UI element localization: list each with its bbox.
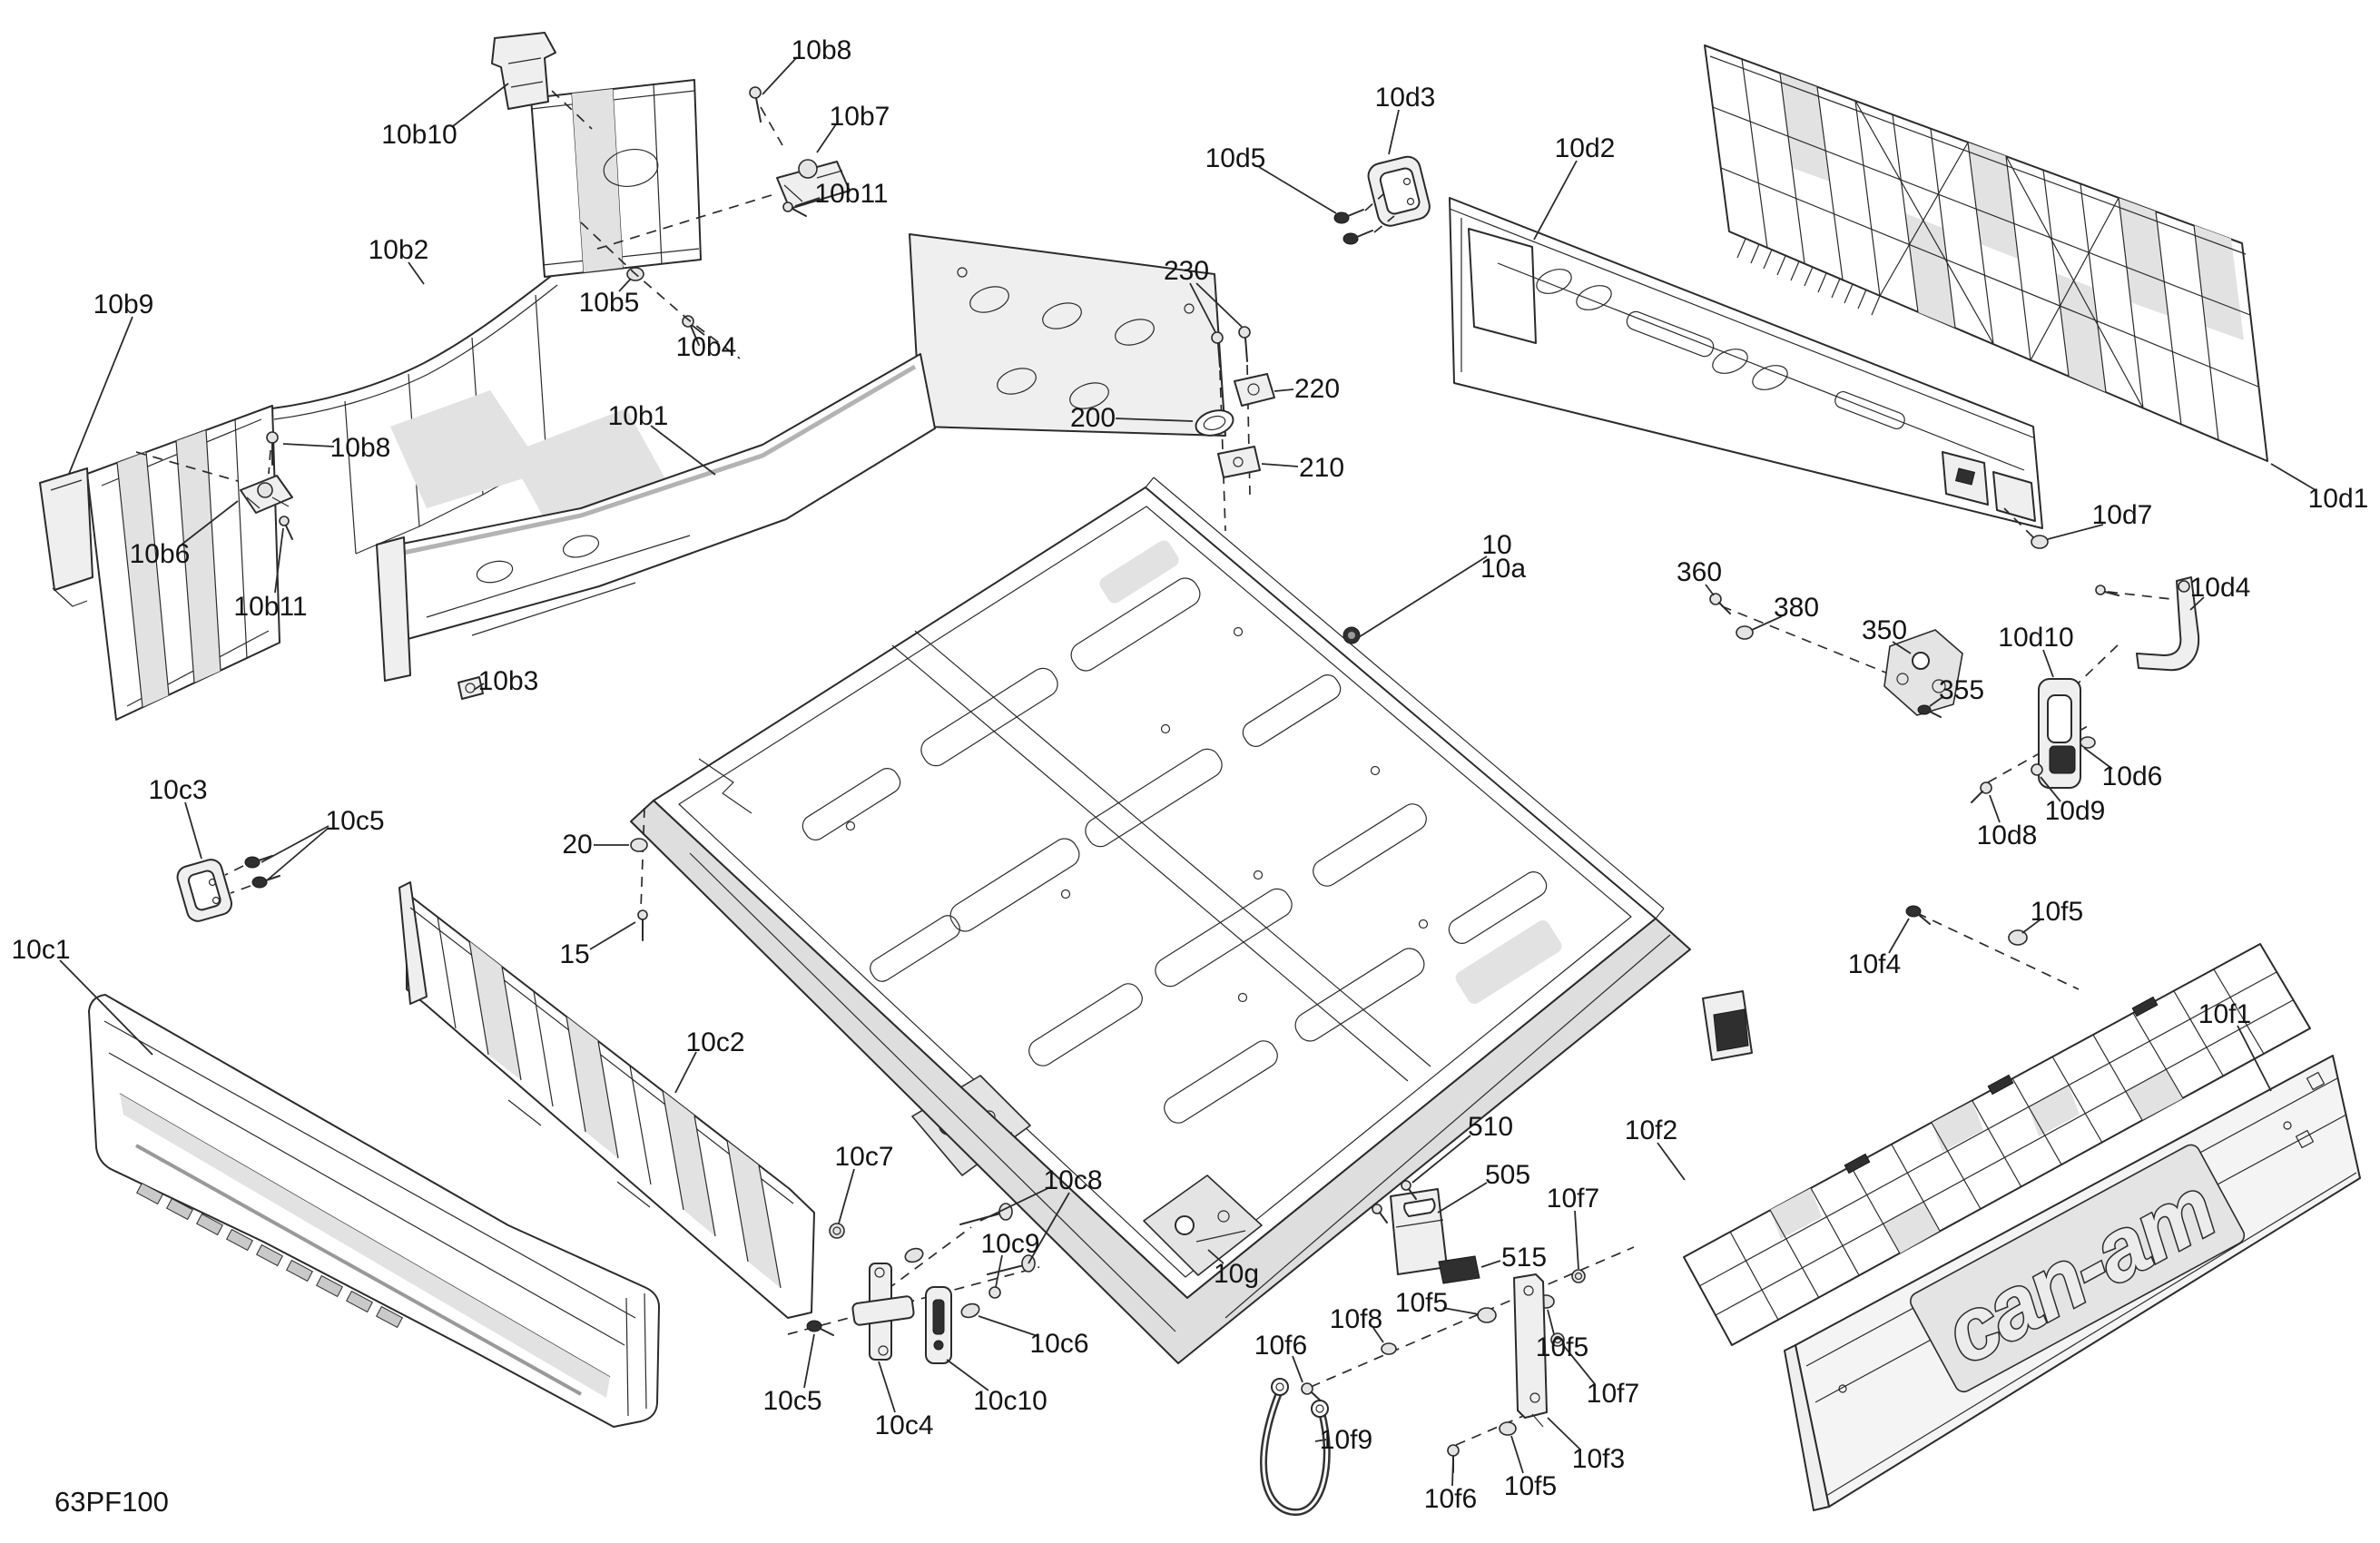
- hardware-10c5-screws: [225, 856, 280, 893]
- callout-10f9: 10f9: [1315, 1425, 1372, 1455]
- callout-text-20: 20: [562, 830, 592, 860]
- callout-text-10b8-low: 10b8: [330, 433, 391, 463]
- callout-leader: [2043, 650, 2053, 677]
- callout-leader: [590, 922, 635, 949]
- callout-10f4: 10f4: [1848, 919, 1909, 979]
- callout-220: 220: [1274, 374, 1340, 404]
- callout-leader: [1274, 389, 1293, 391]
- callout-10a: 10a: [1480, 554, 1526, 584]
- callout-text-10d4: 10d4: [2190, 573, 2251, 603]
- callout-text-10c2: 10c2: [685, 1027, 744, 1057]
- part-flap-installed: [1703, 991, 1752, 1060]
- callout-text-10d10: 10d10: [1998, 623, 2073, 653]
- callout-10d10: 10d10: [1998, 623, 2073, 677]
- callout-text-10d2: 10d2: [1555, 133, 1616, 163]
- washer-20: [631, 839, 647, 851]
- callout-10f7-a: 10f7: [1547, 1184, 1599, 1269]
- callout-text-10f1: 10f1: [2198, 999, 2251, 1029]
- callout-10b4: 10b4: [676, 325, 737, 362]
- callout-text-15: 15: [559, 939, 589, 969]
- callout-text-10f4: 10f4: [1848, 949, 1901, 979]
- callout-210: 210: [1262, 453, 1344, 483]
- part-10b10-bracket: [492, 33, 556, 109]
- screw-10d5-b: [1343, 231, 1372, 244]
- callout-leader: [675, 1052, 696, 1093]
- callout-text-10c4: 10c4: [874, 1410, 933, 1440]
- callout-text-10c8: 10c8: [1043, 1165, 1102, 1195]
- callout-leader: [185, 802, 202, 859]
- screw-10f4: [1906, 906, 1930, 924]
- callout-10f8: 10f8: [1330, 1304, 1383, 1342]
- callout-text-200: 200: [1070, 403, 1116, 433]
- screw-10b8-top: [750, 87, 761, 122]
- callout-leader: [1443, 1308, 1479, 1314]
- callout-text-10b4: 10b4: [676, 332, 737, 362]
- callout-10b7: 10b7: [817, 102, 890, 152]
- screw-360: [1710, 594, 1730, 614]
- callout-text-10d8: 10d8: [1977, 821, 2038, 850]
- callout-leader: [1262, 464, 1298, 467]
- callout-leader: [1481, 1261, 1500, 1267]
- callout-10b5: 10b5: [579, 279, 640, 318]
- washer-10f8: [1382, 1343, 1396, 1354]
- callout-text-10a: 10a: [1480, 554, 1526, 584]
- callout-10d1: 10d1: [2271, 464, 2368, 514]
- callout-text-10b8-top: 10b8: [792, 35, 852, 65]
- callout-leader: [1452, 1457, 1453, 1486]
- hardware-10d4-cluster: [1972, 508, 2198, 802]
- nut-10f7-a: [1572, 1270, 1585, 1283]
- callout-10b2: 10b2: [369, 235, 429, 284]
- callout-leader: [283, 444, 334, 447]
- callout-515: 515: [1481, 1243, 1547, 1273]
- callout-text-10f7-b: 10f7: [1587, 1379, 1639, 1409]
- callout-leader: [1511, 1436, 1523, 1473]
- part-515-pad: [1439, 1256, 1480, 1283]
- callout-text-10b9: 10b9: [93, 290, 154, 319]
- callout-10f3: 10f3: [1548, 1418, 1625, 1474]
- callout-leader: [1259, 167, 1336, 213]
- callout-text-10f5-c: 10f5: [1504, 1471, 1557, 1501]
- callout-leader: [453, 84, 508, 126]
- callout-text-10f5-d: 10f5: [2031, 897, 2083, 927]
- callout-text-10f5-b: 10f5: [1536, 1332, 1588, 1362]
- callout-text-360: 360: [1677, 557, 1722, 587]
- callout-text-230: 230: [1164, 256, 1209, 286]
- callout-10c7: 10c7: [834, 1142, 893, 1224]
- callout-leader: [1389, 110, 1399, 154]
- part-10b9-end-cap: [40, 468, 93, 606]
- callout-text-10c5-low: 10c5: [762, 1386, 821, 1416]
- callout-10b10: 10b10: [381, 84, 508, 150]
- plate-10c4: [852, 1263, 915, 1360]
- callout-leader: [1359, 556, 1487, 637]
- washer-10c6-a: [903, 1246, 925, 1264]
- callout-text-10d1: 10d1: [2308, 484, 2369, 514]
- callout-10c5-top: 10c5: [261, 806, 385, 880]
- screw-10d8: [1972, 782, 1992, 802]
- nut-10c9: [989, 1287, 1000, 1298]
- callout-text-515: 515: [1501, 1243, 1547, 1273]
- callout-leader: [408, 262, 424, 284]
- callout-10f5-c: 10f5: [1504, 1436, 1557, 1501]
- screw-510-b: [1372, 1204, 1387, 1223]
- callout-text-10f2: 10f2: [1625, 1115, 1677, 1145]
- callout-text-210: 210: [1299, 453, 1344, 483]
- callout-10d3: 10d3: [1375, 83, 1436, 154]
- bracket-220: [1234, 374, 1274, 406]
- callout-10b9: 10b9: [69, 290, 153, 474]
- callout-10c2: 10c2: [675, 1027, 745, 1093]
- callout-10c4: 10c4: [874, 1361, 933, 1440]
- callout-leader: [651, 426, 715, 475]
- callout-text-10b11-low: 10b11: [233, 592, 307, 622]
- screw-10d5-a: [1334, 210, 1363, 223]
- callout-10d8: 10d8: [1977, 795, 2038, 850]
- callout-text-10c10: 10c10: [973, 1386, 1047, 1416]
- floor-latch-fitting: [1343, 627, 1360, 644]
- callout-text-10c5-top: 10c5: [325, 806, 384, 836]
- callout-10c10: 10c10: [947, 1360, 1047, 1416]
- callout-leader: [879, 1361, 895, 1412]
- callout-text-10b3: 10b3: [478, 666, 539, 696]
- callout-10: 10: [1359, 530, 1512, 637]
- callout-10f6-b: 10f6: [1424, 1457, 1477, 1514]
- callout-350: 350: [1862, 615, 1911, 654]
- callout-text-10d6: 10d6: [2102, 762, 2163, 791]
- part-10d3-frame: [1366, 154, 1432, 229]
- callout-leader: [1548, 1310, 1554, 1334]
- callout-text-10c3: 10c3: [148, 775, 207, 805]
- bracket-210: [1218, 447, 1260, 477]
- callout-text-10f7-a: 10f7: [1547, 1184, 1599, 1214]
- handle-10d4: [2096, 577, 2198, 670]
- callout-text-10d9: 10d9: [2045, 796, 2106, 826]
- nut-10c7: [830, 1224, 844, 1238]
- callout-10f2: 10f2: [1625, 1115, 1685, 1180]
- callout-leader: [1575, 1211, 1578, 1269]
- callout-text-10f6-b: 10f6: [1424, 1484, 1477, 1514]
- part-10c3-frame: [175, 857, 234, 923]
- washer-380: [1736, 626, 1753, 639]
- callout-355: 355: [1930, 675, 1984, 706]
- striker-10d10: [2039, 679, 2080, 788]
- callout-text-10c1: 10c1: [11, 935, 70, 965]
- washer-10f5-a: [1478, 1308, 1496, 1322]
- callout-text-10f6-a: 10f6: [1254, 1331, 1307, 1361]
- screw-15: [638, 910, 647, 940]
- washer-10d6: [2080, 737, 2095, 748]
- parts-diagram-page: can-am: [0, 0, 2380, 1543]
- washer-10c6-b: [959, 1302, 981, 1320]
- callout-text-10f8: 10f8: [1330, 1304, 1382, 1334]
- callout-10d4: 10d4: [2190, 573, 2251, 610]
- callout-10d5: 10d5: [1205, 143, 1336, 213]
- callout-text-10b1: 10b1: [608, 401, 669, 431]
- callout-text-350: 350: [1862, 615, 1907, 645]
- callout-10f5-d: 10f5: [2022, 897, 2083, 933]
- callout-leader: [979, 1316, 1038, 1336]
- callout-text-505: 505: [1485, 1160, 1530, 1190]
- callout-10c5-low: 10c5: [762, 1334, 821, 1416]
- callout-text-10c7: 10c7: [834, 1142, 893, 1172]
- screw-10d4: [2096, 585, 2119, 595]
- callout-text-10g: 10g: [1214, 1259, 1259, 1289]
- nut-10d9: [2031, 764, 2042, 775]
- exploded-parts-diagram: can-am: [0, 0, 2380, 1543]
- callout-10f5-a: 10f5: [1395, 1288, 1479, 1318]
- callout-20: 20: [562, 830, 629, 860]
- callout-10c9: 10c9: [980, 1229, 1039, 1287]
- callout-10b8-low: 10b8: [283, 433, 390, 463]
- callout-text-10b7: 10b7: [830, 102, 890, 132]
- callout-text-10b2: 10b2: [369, 235, 429, 265]
- callout-text-510: 510: [1468, 1112, 1513, 1142]
- callout-text-10b11-top: 10b11: [814, 179, 888, 209]
- callout-10d6: 10d6: [2084, 748, 2162, 791]
- callout-text-10f3: 10f3: [1572, 1444, 1625, 1474]
- callout-text-10c6: 10c6: [1029, 1329, 1088, 1359]
- bolt-10c8-a: [960, 1204, 1012, 1224]
- washer-10d7: [2031, 536, 2048, 548]
- washer-10f5-c: [1500, 1422, 1516, 1435]
- callout-505: 505: [1438, 1160, 1530, 1213]
- callout-text-10f9: 10f9: [1320, 1425, 1372, 1455]
- callout-text-10b6: 10b6: [130, 539, 191, 569]
- callout-text-10d7: 10d7: [2092, 500, 2153, 530]
- callout-text-355: 355: [1939, 675, 1984, 705]
- callout-text-10b5: 10b5: [579, 288, 640, 318]
- callout-360: 360: [1677, 557, 1722, 595]
- callout-10c3: 10c3: [148, 775, 207, 859]
- diagram-code: 63PF100: [54, 1486, 169, 1518]
- callout-text-10d5: 10d5: [1205, 143, 1266, 173]
- callout-10d7: 10d7: [2048, 500, 2152, 539]
- callout-380: 380: [1752, 593, 1819, 630]
- callout-leader: [1534, 161, 1577, 240]
- callout-text-10b10: 10b10: [381, 120, 457, 150]
- callout-leader: [1438, 1183, 1487, 1213]
- callout-10d2: 10d2: [1534, 133, 1615, 240]
- hardware-350-cluster: [1710, 594, 1962, 717]
- callout-text-10d3: 10d3: [1375, 83, 1436, 113]
- callout-10f6-a: 10f6: [1254, 1331, 1307, 1382]
- screw-10c5-b: [252, 876, 280, 888]
- callout-10b3: 10b3: [474, 666, 538, 696]
- callout-text-10f5-a: 10f5: [1395, 1288, 1448, 1318]
- screw-230-b: [1239, 327, 1250, 361]
- callout-10c6: 10c6: [979, 1316, 1089, 1359]
- callout-15: 15: [559, 922, 635, 969]
- striker-10c10: [926, 1287, 951, 1363]
- callout-leader: [804, 1334, 814, 1388]
- callout-text-10c9: 10c9: [980, 1229, 1039, 1259]
- callout-text-220: 220: [1294, 374, 1340, 404]
- hardware-10c-cluster: [788, 1204, 1039, 1363]
- callout-leader: [1990, 795, 2000, 822]
- callout-leader: [839, 1169, 854, 1224]
- callout-text-380: 380: [1774, 593, 1819, 623]
- callout-10b8-top: 10b8: [762, 35, 851, 94]
- callout-leader: [1657, 1143, 1685, 1180]
- callout-leader: [1889, 919, 1909, 953]
- callout-leader: [69, 317, 133, 474]
